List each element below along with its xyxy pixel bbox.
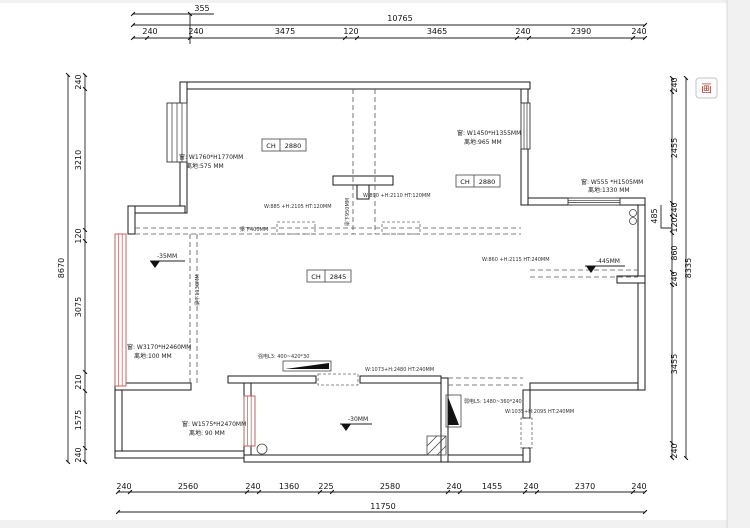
dim-top-7: 240 — [631, 27, 646, 36]
wall-b2-east-a — [521, 89, 528, 103]
dim-left-1: 3210 — [74, 150, 83, 170]
level-marker-3 — [340, 424, 372, 431]
door-kitchen — [521, 418, 532, 448]
beam-3: 梁下950MM — [344, 198, 351, 226]
dim-bot-2: 240 — [245, 482, 260, 491]
pipe-1 — [630, 210, 637, 217]
wall-bottom-room — [244, 455, 530, 462]
dim-right-5: 240 — [670, 271, 679, 286]
wall-step-v — [128, 206, 135, 234]
dim-top-1: 240 — [188, 27, 203, 36]
wall-east-b — [638, 283, 645, 390]
floorplan-canvas: 355 10765 240 240 3475 120 3465 240 2390… — [0, 0, 750, 528]
dim-left-2: 120 — [74, 228, 83, 243]
door5-size: W:1035+H:2095 HT:240MM — [505, 409, 574, 415]
annotations: 窗: W1760*H1770MM 离地:575 MM 窗: W1450*H135… — [127, 129, 643, 437]
wall-b1-west-a — [180, 82, 187, 105]
dim-top-3: 120 — [343, 27, 358, 36]
dim-top-6: 2390 — [571, 27, 591, 36]
window5-size: 窗: W1575*H2470MM — [182, 420, 246, 428]
beam-2: 梁下400MM — [240, 226, 268, 233]
dim-right-1: 2455 — [670, 138, 679, 158]
wall-dining-top-a — [228, 376, 316, 383]
ch-box-bedroom1: CH 2880 — [262, 139, 306, 151]
door1-size: W:885 +H:2105 HT:120MM — [264, 204, 332, 210]
dim-bot-3: 1360 — [279, 482, 299, 491]
level-1: -35MM — [157, 253, 177, 260]
dim-bot-0: 240 — [116, 482, 131, 491]
dim-top-2: 3475 — [275, 27, 295, 36]
pipe-2 — [630, 218, 637, 225]
tool-button-glyph: 画 — [701, 82, 712, 95]
window3-size: 窗: W555 *H1505MM — [581, 178, 643, 186]
door2-size: W:890 +H:2110 HT:120MM — [363, 193, 431, 199]
dim-left-overall: 8670 — [57, 258, 66, 278]
window2-sill: 离地:965 MM — [464, 138, 502, 146]
window3-sill: 离地:1330 MM — [588, 186, 630, 194]
ch-box-bedroom2: CH 2880 — [456, 175, 500, 187]
dim-bot-9: 2370 — [575, 482, 595, 491]
ch-box-living: CH 2845 — [307, 270, 351, 282]
dim-top-offset: 355 — [194, 4, 209, 13]
weak-power-box — [446, 395, 461, 427]
dim-right-0: 240 — [670, 77, 679, 92]
wall-balcony-bottom — [115, 451, 248, 458]
dim-top-4: 3465 — [427, 27, 447, 36]
dim-right-6: 3455 — [670, 354, 679, 374]
dim-bot-8: 240 — [523, 482, 538, 491]
dim-top-5: 240 — [515, 27, 530, 36]
wall-kitchen-east-b — [523, 448, 530, 462]
dim-left-5: 1575 — [74, 410, 83, 430]
ch-value-2: 2880 — [479, 178, 496, 186]
dim-bot-6: 240 — [446, 482, 461, 491]
ch-label-2: CH — [460, 178, 470, 186]
window-bedroom2 — [521, 103, 530, 149]
wall-center-block — [333, 176, 393, 185]
wall-top — [183, 82, 530, 89]
wall-entry-top-a — [528, 198, 572, 205]
level-marker-2 — [585, 266, 625, 273]
dim-right-offset: 485 — [650, 208, 659, 223]
wall-b2-east-b — [521, 149, 528, 205]
door4-size: W:1073+H:2480 HT:240MM — [365, 367, 434, 373]
dim-right-4: 860 — [670, 245, 679, 260]
strong-power-box — [283, 361, 331, 371]
dim-left-0: 240 — [74, 74, 83, 89]
dim-bot-5: 2580 — [380, 482, 400, 491]
level-2: -445MM — [596, 258, 620, 265]
ch-label-1: CH — [266, 142, 276, 150]
wall-dining-top-b — [360, 376, 441, 383]
dim-right-overall: 8335 — [684, 258, 693, 278]
dim-bot-4: 225 — [318, 482, 333, 491]
window5-sill: 离地: 90 MM — [189, 429, 225, 437]
wall-balcony-west — [115, 390, 122, 458]
top-border — [0, 0, 750, 3]
window2-size: 窗: W1450*H1355MM — [457, 129, 521, 137]
beams-and-openings — [135, 89, 638, 448]
dim-bot-1: 2560 — [178, 482, 198, 491]
door3-size: W:860 +H:2115 HT:240MM — [482, 257, 550, 263]
wall-east-a — [638, 205, 645, 276]
dim-top-overall: 10765 — [387, 14, 412, 23]
window1-size: 窗: W1760*H1770MM — [179, 153, 243, 161]
dim-bot-10: 240 — [631, 482, 646, 491]
dim-left-6: 240 — [74, 447, 83, 462]
level-marker-1 — [150, 261, 185, 268]
door-dining — [318, 374, 358, 385]
canvas-tool-button[interactable]: 画 — [696, 78, 717, 98]
ceiling-boxes: CH 2880 CH 2880 CH 2845 — [262, 139, 500, 282]
walls — [115, 82, 645, 462]
dim-top-0: 240 — [142, 27, 157, 36]
floor-drain — [257, 444, 267, 454]
right-panel — [727, 0, 750, 528]
electrical-strong-label: 强电L3: 400~420*30 — [258, 353, 309, 360]
window-entry — [568, 198, 620, 205]
window4-sill: 离地:100 MM — [134, 352, 172, 360]
ch-value-1: 2880 — [285, 142, 302, 150]
window1-sill: 离地:575 MM — [186, 162, 224, 170]
dim-right-7: 240 — [670, 443, 679, 458]
wall-se — [530, 383, 645, 390]
beam-1: 梁下1130MM — [194, 274, 201, 305]
dim-right-2: 240 — [670, 202, 679, 217]
electrical-weak-label: 弱电L5: 1480~360*240 — [464, 398, 522, 405]
dim-right-3: 120 — [670, 217, 679, 232]
bottom-strip — [0, 520, 750, 528]
floorplan-page: 355 10765 240 240 3475 120 3465 240 2390… — [0, 0, 750, 528]
ch-label-3: CH — [311, 273, 321, 281]
window-living-west — [115, 234, 126, 386]
dim-bot-7: 1455 — [482, 482, 502, 491]
ch-value-3: 2845 — [330, 273, 347, 281]
wall-step-h — [128, 206, 185, 213]
level-3: -30MM — [348, 416, 368, 423]
dim-left-3: 3075 — [74, 297, 83, 317]
dim-left-4: 210 — [74, 374, 83, 389]
window4-size: 窗: W3170*H2460MM — [127, 343, 191, 351]
dim-bottom-overall: 11750 — [370, 502, 395, 511]
fixtures — [150, 210, 637, 456]
